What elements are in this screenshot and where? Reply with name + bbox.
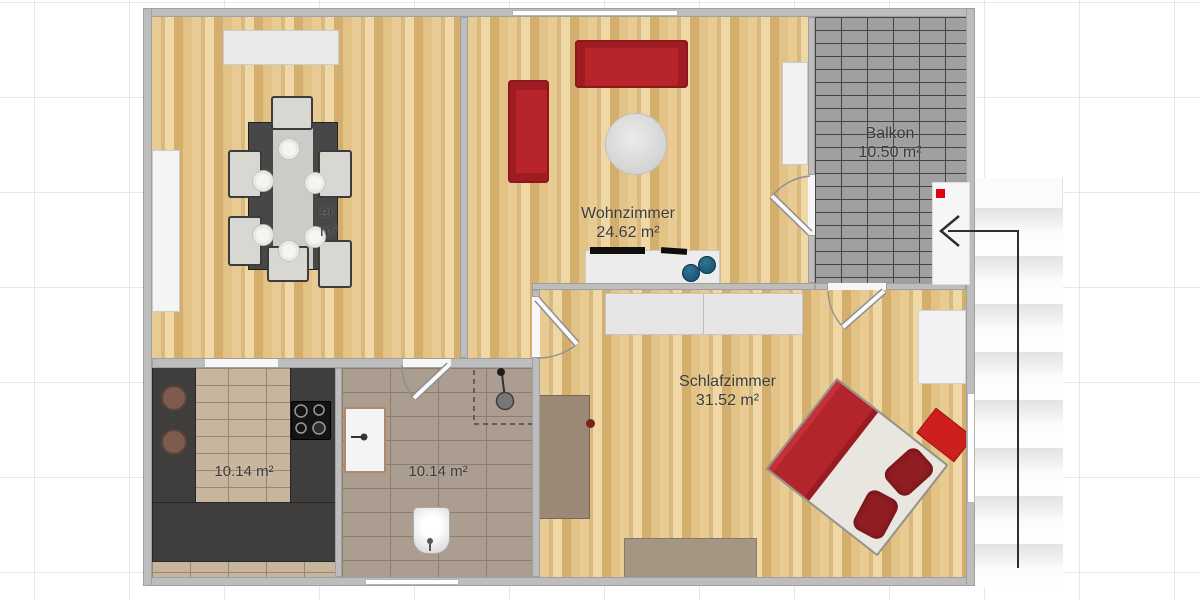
tv-bar — [590, 247, 645, 254]
room-name: Wohnzimmer — [581, 205, 675, 222]
kitchen-sink — [161, 429, 187, 455]
room-name: Balkon — [866, 125, 915, 142]
kitchen-sink — [161, 385, 187, 411]
dining-chair[interactable] — [271, 96, 313, 130]
dining-chair[interactable] — [318, 240, 352, 288]
plate — [252, 170, 274, 192]
wall-dining-living — [460, 17, 468, 358]
room-area: 31.52 m² — [696, 392, 759, 409]
wall-bedroom-west-lower — [532, 357, 540, 577]
wardrobe-knob — [586, 419, 595, 428]
plate — [252, 224, 274, 246]
coffee-table[interactable] — [605, 113, 667, 175]
dresser[interactable] — [918, 310, 966, 384]
window-bathroom-south — [365, 579, 459, 585]
plate — [278, 240, 300, 262]
room-area: 24.62 m² — [596, 224, 659, 241]
wardrobe-tall[interactable] — [538, 395, 590, 519]
opening-dining-kitchen — [205, 359, 278, 367]
room-area-fragment: m² — [320, 223, 339, 240]
toilet[interactable] — [413, 507, 450, 554]
sofa[interactable] — [575, 40, 688, 88]
stair-step — [975, 256, 1063, 304]
wardrobe[interactable] — [605, 293, 803, 335]
dining-chair[interactable] — [318, 150, 352, 198]
doorway-balcony-bedroom — [828, 283, 886, 290]
room-area: 10.14 m² — [214, 463, 273, 480]
entrance-marker-red-square — [936, 189, 945, 198]
room-label-balcony: Balkon 10.50 m² — [830, 124, 950, 162]
room-name: Schlafzimmer — [679, 373, 776, 390]
room-living-passage-floor[interactable] — [468, 283, 532, 358]
doorway-bedroom-west — [532, 297, 540, 357]
bed-pillow — [850, 487, 901, 542]
stair-step — [975, 208, 1063, 256]
kitchen-counter[interactable] — [152, 502, 339, 562]
room-label-dining-fragment: er m² — [320, 203, 366, 241]
plate — [304, 172, 326, 194]
floor-plan-page: { "plan_type": "apartment-floor-plan", "… — [0, 0, 1200, 600]
room-label-bathroom: 10.14 m² — [378, 462, 498, 481]
plate — [278, 138, 300, 160]
wall-bottom — [143, 577, 975, 586]
wall-living-bedroom — [532, 283, 815, 290]
room-area: 10.14 m² — [408, 463, 467, 480]
room-label-kitchen: 10.14 m² — [184, 462, 304, 481]
room-name-fragment: er — [320, 204, 334, 221]
stairwell — [975, 178, 1063, 588]
wall-living-balcony-upper — [808, 17, 815, 175]
window-sill-panel — [782, 62, 808, 165]
cooktop[interactable] — [291, 401, 331, 440]
window-bedroom-east — [967, 393, 975, 503]
shelf[interactable] — [152, 150, 180, 312]
stool[interactable] — [698, 256, 716, 274]
window-living-north — [512, 10, 678, 16]
wall-bedroom-west-upper — [532, 290, 540, 297]
wardrobe-divider — [703, 294, 704, 334]
stair-step — [975, 448, 1063, 496]
wall-balcony-bedroom-left — [815, 283, 828, 290]
stair-step — [975, 544, 1063, 588]
wall-left — [143, 8, 152, 586]
sofa[interactable] — [508, 80, 549, 183]
sideboard[interactable] — [223, 30, 339, 65]
bedroom-sideboard[interactable] — [624, 538, 757, 580]
doorway-bathroom — [403, 359, 451, 367]
wall-kitchen-bath — [335, 368, 342, 577]
stair-step — [975, 352, 1063, 400]
room-label-bedroom: Schlafzimmer 31.52 m² — [650, 372, 805, 410]
room-label-living: Wohnzimmer 24.62 m² — [558, 204, 698, 242]
stair-step — [975, 304, 1063, 352]
stair-step — [975, 496, 1063, 544]
wall-living-balcony-lower — [808, 235, 815, 283]
room-area: 10.50 m² — [858, 144, 921, 161]
doorway-living-balcony — [808, 175, 815, 235]
stair-step — [975, 400, 1063, 448]
